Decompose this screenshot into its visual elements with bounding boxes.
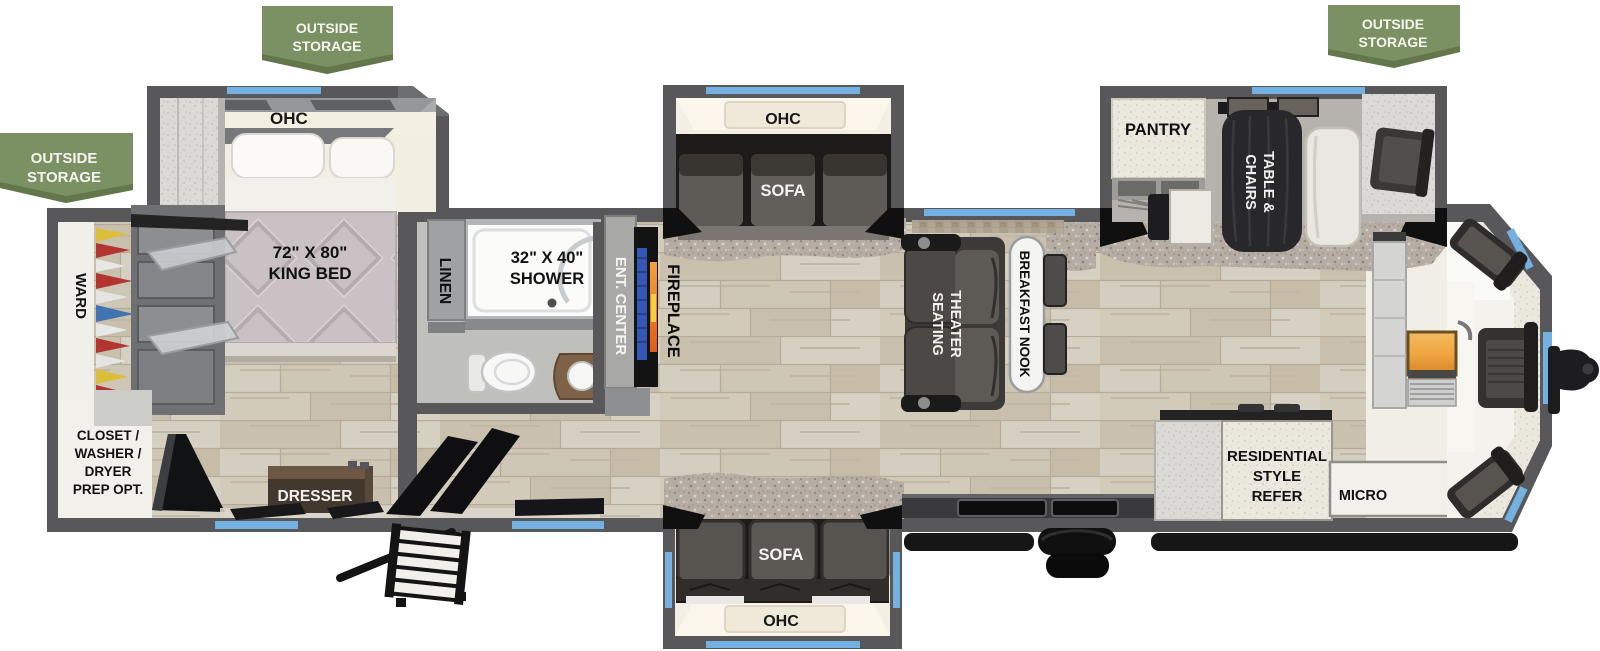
svg-text:32" X 40": 32" X 40" — [511, 249, 584, 267]
svg-text:MICRO: MICRO — [1339, 488, 1387, 504]
svg-text:THEATER: THEATER — [947, 290, 963, 358]
svg-text:OUTSIDE: OUTSIDE — [296, 20, 358, 36]
svg-text:SEATING: SEATING — [929, 292, 945, 355]
svg-text:TABLE &: TABLE & — [1260, 151, 1276, 213]
svg-text:STORAGE: STORAGE — [27, 169, 101, 186]
svg-text:STORAGE: STORAGE — [1359, 34, 1428, 50]
svg-text:WARD: WARD — [72, 273, 89, 319]
svg-text:OUTSIDE: OUTSIDE — [31, 150, 98, 167]
svg-text:PANTRY: PANTRY — [1125, 121, 1191, 139]
svg-text:SOFA: SOFA — [761, 182, 806, 200]
svg-text:STORAGE: STORAGE — [293, 38, 362, 54]
svg-text:DRESSER: DRESSER — [278, 488, 353, 505]
svg-text:DRYER: DRYER — [85, 464, 132, 479]
svg-text:LINEN: LINEN — [436, 258, 453, 305]
svg-text:SHOWER: SHOWER — [510, 270, 584, 288]
svg-text:KING BED: KING BED — [268, 264, 351, 283]
svg-text:OHC: OHC — [270, 109, 308, 128]
svg-text:OHC: OHC — [763, 613, 799, 630]
svg-text:SOFA: SOFA — [759, 546, 804, 564]
svg-text:BREAKFAST NOOK: BREAKFAST NOOK — [1017, 251, 1032, 378]
svg-text:REFER: REFER — [1252, 488, 1303, 505]
svg-text:PREP OPT.: PREP OPT. — [73, 482, 143, 497]
svg-text:OHC: OHC — [765, 111, 801, 128]
svg-text:72" X 80": 72" X 80" — [273, 243, 348, 262]
svg-text:CLOSET /: CLOSET / — [77, 428, 140, 443]
svg-text:FIREPLACE: FIREPLACE — [664, 264, 682, 358]
svg-text:CHAIRS: CHAIRS — [1242, 154, 1258, 210]
svg-text:OUTSIDE: OUTSIDE — [1362, 16, 1424, 32]
svg-text:RESIDENTIAL: RESIDENTIAL — [1227, 448, 1327, 465]
svg-text:ENT. CENTER: ENT. CENTER — [612, 257, 629, 356]
svg-text:STYLE: STYLE — [1253, 468, 1301, 485]
svg-text:WASHER /: WASHER / — [75, 446, 142, 461]
